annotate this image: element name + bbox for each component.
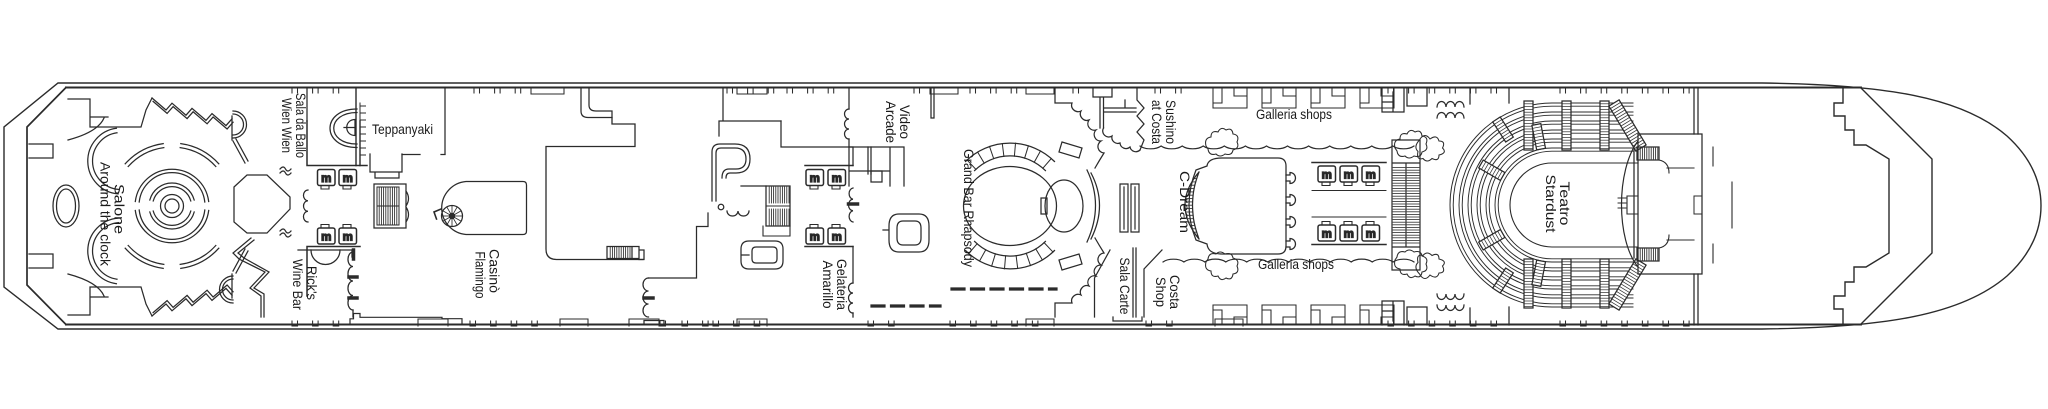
svg-text:C-Dream: C-Dream	[1177, 171, 1193, 233]
svg-text:m: m	[1366, 170, 1376, 182]
svg-text:Shop: Shop	[1153, 277, 1169, 307]
svg-text:m: m	[1344, 170, 1354, 182]
svg-text:Wine Bar: Wine Bar	[290, 259, 306, 310]
svg-text:m: m	[1344, 229, 1354, 241]
svg-text:m: m	[832, 173, 842, 185]
svg-text:m: m	[321, 232, 331, 244]
svg-text:Amarillo: Amarillo	[820, 261, 836, 309]
svg-text:Grand Bar Rhapsody: Grand Bar Rhapsody	[961, 149, 977, 267]
svg-text:Flamingo: Flamingo	[473, 252, 489, 299]
svg-text:m: m	[1366, 229, 1376, 241]
svg-text:Stardust: Stardust	[1543, 175, 1559, 233]
svg-text:Around the clock: Around the clock	[98, 162, 114, 267]
svg-text:m: m	[343, 232, 353, 244]
svg-text:Sala Carte: Sala Carte	[1117, 258, 1133, 315]
svg-text:Teppanyaki: Teppanyaki	[372, 121, 433, 137]
svg-text:m: m	[321, 173, 331, 185]
svg-text:m: m	[1322, 229, 1332, 241]
svg-text:Arcade: Arcade	[883, 101, 899, 143]
svg-text:m: m	[810, 232, 820, 244]
svg-text:Wien Wien: Wien Wien	[279, 98, 295, 153]
svg-text:Galleria shops: Galleria shops	[1258, 256, 1334, 272]
svg-text:Galleria shops: Galleria shops	[1256, 106, 1332, 122]
svg-text:m: m	[343, 173, 353, 185]
svg-text:m: m	[832, 232, 842, 244]
svg-text:m: m	[810, 173, 820, 185]
svg-text:at Costa: at Costa	[1149, 100, 1165, 144]
svg-text:m: m	[1322, 170, 1332, 182]
